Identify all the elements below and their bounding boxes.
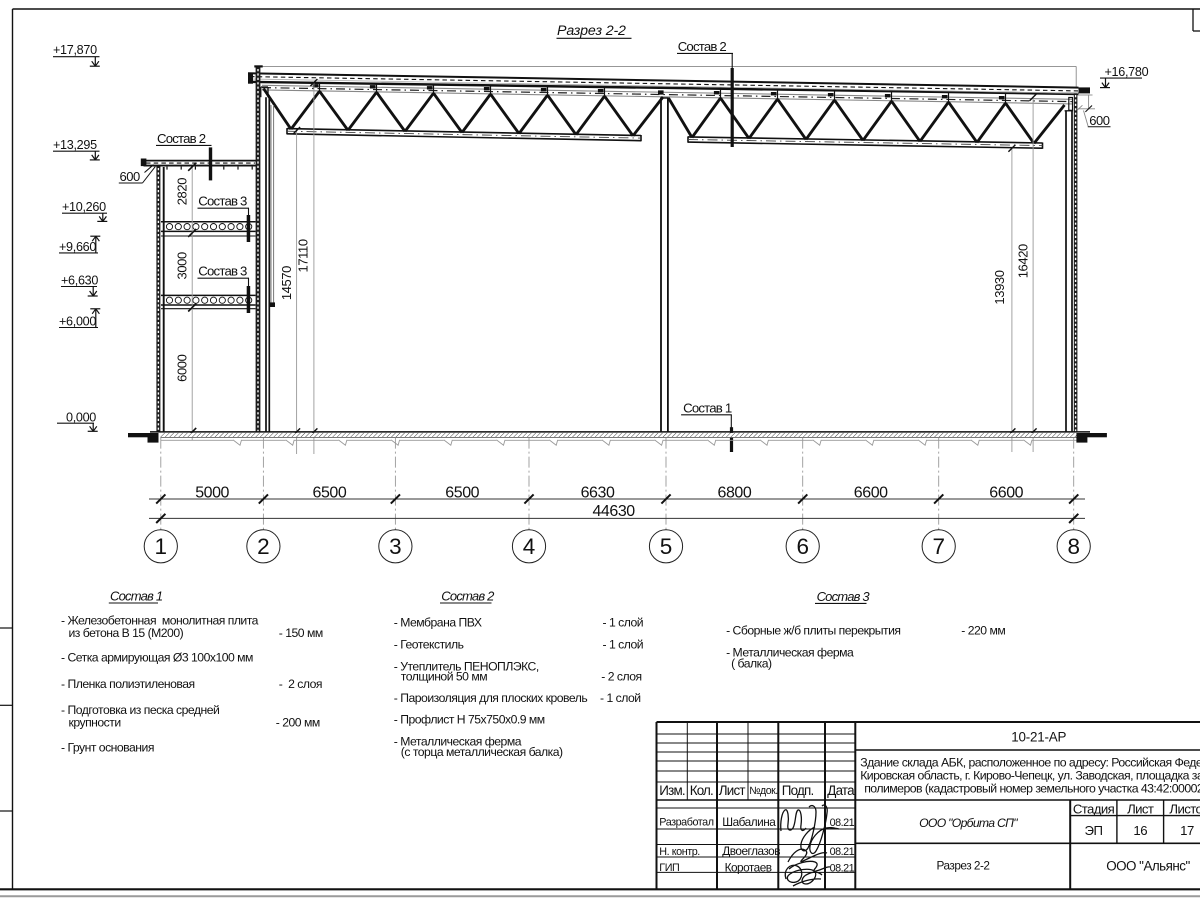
svg-text:- Грунт основания: - Грунт основания	[61, 741, 154, 755]
svg-text:16420: 16420	[1015, 244, 1030, 278]
svg-text:- Геотекстиль: - Геотекстиль	[394, 638, 464, 652]
svg-text:10-21-АР: 10-21-АР	[1011, 730, 1066, 745]
svg-text:600: 600	[120, 169, 140, 184]
svg-text:- Сетка армирующая Ø3 100х100: - Сетка армирующая Ø3 100х100 мм	[61, 651, 253, 665]
svg-text:6500: 6500	[445, 484, 479, 501]
svg-text:Коротаев: Коротаев	[725, 860, 772, 874]
svg-text:2: 2	[257, 534, 270, 559]
svg-text:ГИП: ГИП	[659, 862, 679, 874]
svg-text:6630: 6630	[581, 484, 615, 501]
svg-text:6800: 6800	[718, 484, 752, 501]
svg-text:Дата: Дата	[827, 783, 855, 798]
svg-text:Н. контр.: Н. контр.	[659, 846, 700, 858]
svg-text:3000: 3000	[175, 252, 190, 279]
svg-text:полимеров (кадастровый номер з: полимеров (кадастровый номер земельного …	[864, 781, 1200, 795]
svg-text:08.21: 08.21	[830, 863, 855, 875]
svg-text:- 1 слой: - 1 слой	[603, 638, 644, 652]
svg-text:16: 16	[1133, 823, 1147, 838]
svg-text:+6,630: +6,630	[61, 273, 98, 287]
svg-text:Подп.: Подп.	[782, 783, 814, 798]
svg-text:6600: 6600	[854, 484, 888, 501]
svg-text:Кол.: Кол.	[690, 783, 713, 798]
svg-text:ЭП: ЭП	[1085, 823, 1103, 838]
svg-text:Разрез 2-2: Разрез 2-2	[937, 858, 990, 872]
svg-text:Шабалина: Шабалина	[722, 815, 776, 829]
svg-text:08.21: 08.21	[830, 846, 855, 858]
svg-text:Состав 2: Состав 2	[441, 588, 495, 603]
svg-text:Состав 1: Состав 1	[683, 400, 732, 415]
svg-text:- 1 слой: - 1 слой	[600, 691, 641, 705]
svg-text:- Сборные ж/б плиты перекрытия: - Сборные ж/б плиты перекрытия	[726, 624, 900, 638]
svg-text:7: 7	[932, 534, 945, 559]
svg-text:1: 1	[155, 534, 168, 559]
svg-text:6000: 6000	[175, 354, 190, 381]
svg-text:- 150 мм: - 150 мм	[279, 626, 323, 640]
svg-text:600: 600	[1089, 113, 1109, 128]
svg-text:Разрез 2-2: Разрез 2-2	[557, 23, 626, 39]
svg-text:+17,870: +17,870	[53, 43, 97, 57]
svg-text:крупности: крупности	[69, 716, 121, 730]
svg-text:+16,780: +16,780	[1105, 65, 1149, 79]
svg-text:44630: 44630	[592, 503, 635, 520]
svg-text:- 1 слой: - 1 слой	[603, 616, 644, 630]
svg-text:толщиной 50 мм: толщиной 50 мм	[401, 670, 487, 684]
svg-text:8: 8	[1067, 534, 1080, 559]
svg-text:+6,000: +6,000	[59, 315, 96, 329]
svg-text:(с торца металлическая балка): (с торца металлическая балка)	[401, 745, 563, 759]
svg-text:6500: 6500	[313, 484, 347, 501]
svg-text:ООО "Орбита СП": ООО "Орбита СП"	[919, 816, 1018, 830]
svg-text:4: 4	[523, 534, 536, 559]
svg-text:- 2 слоя: - 2 слоя	[279, 677, 322, 691]
svg-text:- 2 слоя: - 2 слоя	[601, 670, 641, 684]
svg-text:3: 3	[389, 534, 402, 559]
svg-text:Состав 2: Состав 2	[678, 39, 727, 54]
svg-text:- Пароизоляция для плоских кро: - Пароизоляция для плоских кровель	[394, 691, 588, 705]
svg-text:Листов: Листов	[1169, 801, 1200, 816]
svg-text:Состав 1: Состав 1	[110, 588, 163, 603]
svg-text:5000: 5000	[195, 484, 229, 501]
svg-text:Состав 3: Состав 3	[198, 193, 247, 208]
svg-text:14570: 14570	[279, 266, 294, 300]
svg-text:( балка): ( балка)	[731, 657, 772, 671]
svg-text:Стадия: Стадия	[1073, 801, 1115, 816]
svg-text:Изм.: Изм.	[659, 783, 685, 798]
svg-text:2820: 2820	[175, 178, 190, 205]
svg-text:17: 17	[1180, 823, 1194, 838]
svg-text:17110: 17110	[295, 239, 310, 272]
svg-text:Состав 2: Состав 2	[157, 131, 206, 146]
svg-text:0,000: 0,000	[66, 410, 96, 424]
svg-text:- Мембрана ПВХ: - Мембрана ПВХ	[394, 616, 482, 630]
svg-text:- Пленка полиэтиленовая: - Пленка полиэтиленовая	[61, 677, 195, 691]
svg-text:+10,260: +10,260	[62, 200, 106, 214]
svg-text:ООО "Альянс": ООО "Альянс"	[1106, 858, 1190, 873]
svg-text:№док.: №док.	[749, 785, 778, 797]
svg-text:Двоеглазов: Двоеглазов	[722, 844, 780, 858]
svg-text:13930: 13930	[992, 270, 1007, 304]
svg-text:- Профлист Н 75х750х0.9 мм: - Профлист Н 75х750х0.9 мм	[394, 713, 545, 727]
svg-text:6: 6	[796, 534, 809, 559]
svg-text:- 220 мм: - 220 мм	[961, 624, 1005, 638]
svg-text:Лист: Лист	[719, 783, 746, 798]
svg-text:Состав 3: Состав 3	[817, 589, 871, 604]
svg-text:5: 5	[660, 534, 673, 559]
svg-text:Разработал: Разработал	[659, 817, 713, 829]
svg-text:Состав 3: Состав 3	[198, 263, 247, 278]
svg-text:6600: 6600	[989, 484, 1023, 501]
svg-text:+9,660: +9,660	[59, 240, 96, 254]
svg-text:- 200 мм: - 200 мм	[276, 716, 320, 730]
svg-text:Лист: Лист	[1127, 801, 1154, 816]
svg-text:+13,295: +13,295	[53, 138, 97, 152]
svg-text:Кировская область, г. Кирово-Ч: Кировская область, г. Кирово-Чепецк, ул.…	[860, 768, 1200, 782]
svg-text:08.21: 08.21	[830, 817, 855, 829]
svg-text:из бетона В 15 (М200): из бетона В 15 (М200)	[69, 626, 184, 640]
